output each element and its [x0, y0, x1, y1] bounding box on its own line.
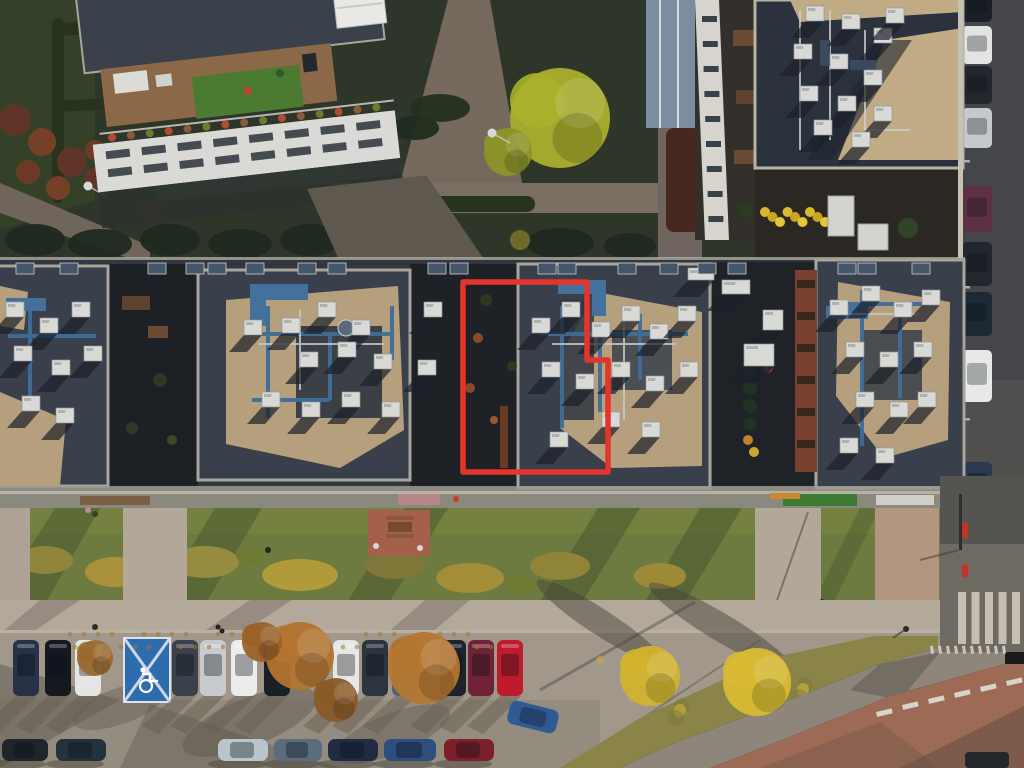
patio-deck	[80, 496, 150, 505]
hvac-vent	[376, 356, 383, 359]
pedestrian	[265, 547, 271, 553]
leaf	[184, 632, 189, 637]
sidewalk	[0, 600, 1005, 634]
hvac-vent	[284, 320, 291, 323]
hvac-vent	[264, 394, 271, 397]
hvac-vent	[578, 376, 585, 379]
window	[797, 376, 815, 384]
leaf	[230, 632, 235, 637]
hvac-vent	[832, 302, 839, 305]
tree	[388, 632, 460, 704]
aerial-photo-canvas	[0, 0, 1024, 768]
glass-facade	[646, 0, 696, 128]
leaf	[341, 645, 346, 650]
hvac-vent	[552, 434, 559, 437]
window	[703, 41, 718, 47]
hvac-vent	[878, 450, 885, 453]
zebra-stripe	[999, 592, 1007, 644]
leaf-cover	[596, 656, 604, 664]
hvac-vent	[680, 308, 687, 311]
zebra-stripe	[972, 592, 980, 644]
window	[706, 141, 721, 147]
hvac-vent	[384, 404, 391, 407]
round-vent	[338, 320, 354, 336]
leaf	[466, 632, 471, 637]
hvac-vent	[16, 348, 23, 351]
terrace-shrub	[898, 218, 918, 238]
skylight	[148, 263, 166, 274]
skylight	[858, 263, 876, 274]
townhouse-row	[0, 257, 965, 492]
skylight	[698, 263, 716, 274]
patio-mat	[876, 495, 934, 505]
tree	[723, 648, 791, 716]
leaf	[392, 632, 397, 637]
leaf	[475, 645, 480, 650]
hvac-vent	[864, 288, 871, 291]
skylight	[728, 263, 746, 274]
hvac-vent	[420, 362, 427, 365]
patio-blanket	[398, 494, 440, 505]
skylight	[60, 263, 78, 274]
window	[704, 66, 719, 72]
picnic-table	[388, 522, 412, 532]
hvac-vent	[816, 122, 823, 125]
hvac-vent	[916, 344, 923, 347]
hvac-vent	[858, 394, 865, 397]
leaf	[119, 645, 124, 650]
tree	[620, 646, 680, 706]
skylight	[912, 263, 930, 274]
leaf	[378, 632, 383, 637]
terrace-hvac	[858, 224, 888, 250]
zebra-stripe	[1012, 592, 1020, 644]
zebra-stripe	[958, 592, 966, 644]
leaf	[179, 645, 184, 650]
leaf	[193, 645, 198, 650]
hvac-vent	[866, 72, 873, 75]
window	[797, 344, 815, 352]
hvac-vent	[808, 8, 815, 11]
hvac-vent	[896, 304, 903, 307]
leaf	[221, 645, 226, 650]
hvac-vent	[840, 98, 847, 101]
hvac-vent	[320, 304, 327, 307]
leaf-cover	[668, 710, 684, 726]
skylight	[428, 263, 446, 274]
hvac-vent	[876, 108, 883, 111]
parked-car	[965, 752, 1009, 768]
leaf	[110, 632, 115, 637]
window	[704, 91, 719, 97]
window	[707, 166, 722, 172]
hvac-vent	[86, 348, 93, 351]
hvac-vent	[844, 16, 851, 19]
leaf	[489, 645, 494, 650]
skylight	[186, 263, 204, 274]
terrace-bench	[500, 406, 508, 468]
lawn-strip	[0, 507, 1005, 634]
terrace-grill	[302, 53, 318, 72]
tree	[242, 622, 282, 662]
leaf	[142, 632, 147, 637]
red-bollard	[962, 564, 968, 578]
hvac-vent	[842, 440, 849, 443]
skylight	[246, 263, 264, 274]
leaf	[452, 632, 457, 637]
hvac-vent	[644, 424, 651, 427]
hvac-vent	[354, 322, 361, 325]
hvac-vent	[796, 46, 803, 49]
leaf	[147, 645, 152, 650]
skylight	[328, 263, 346, 274]
hvac-vent	[832, 56, 839, 59]
hvac-vent	[594, 324, 601, 327]
red-bollard	[962, 522, 968, 539]
hvac-vent	[652, 326, 659, 329]
leaf	[170, 632, 175, 637]
hvac-vent	[648, 378, 655, 381]
window	[702, 16, 717, 22]
cyclist	[216, 625, 221, 630]
hvac-vent	[426, 304, 433, 307]
leaf	[96, 632, 101, 637]
leaf	[355, 645, 360, 650]
hvac-vent	[304, 404, 311, 407]
hvac-vent	[624, 308, 631, 311]
hvac-vent	[54, 362, 61, 365]
window	[708, 216, 723, 222]
skylight	[660, 263, 678, 274]
window	[797, 280, 815, 288]
hvac-vent	[614, 364, 621, 367]
tree	[314, 678, 358, 722]
hvac-vent	[920, 394, 927, 397]
hvac-vent	[682, 364, 689, 367]
window	[797, 440, 815, 448]
window	[708, 191, 723, 197]
hvac-vent	[765, 312, 773, 315]
hvac-vent	[924, 292, 931, 295]
window	[705, 116, 720, 122]
hvac-vent	[42, 320, 49, 323]
leaf	[68, 632, 73, 637]
hvac-vent	[848, 344, 855, 347]
hvac-vent	[544, 364, 551, 367]
hvac-vent	[888, 10, 895, 13]
shrub	[510, 230, 530, 250]
skylight	[208, 263, 226, 274]
hvac-vent	[854, 134, 861, 137]
hvac-vent	[564, 304, 571, 307]
leaf	[156, 632, 161, 637]
terrace-furniture	[113, 70, 149, 94]
leaf	[73, 645, 78, 650]
pedestrian	[92, 624, 98, 630]
hvac-vent	[340, 344, 347, 347]
skylight	[838, 263, 856, 274]
terrace-hvac	[828, 196, 854, 236]
leaf	[364, 632, 369, 637]
flower	[775, 217, 785, 227]
leaf	[133, 645, 138, 650]
hvac-vent	[534, 320, 541, 323]
hvac-vent	[58, 410, 65, 413]
aerial-photo	[0, 0, 1024, 768]
hvac-vent	[746, 346, 758, 349]
skylight	[450, 263, 468, 274]
facade-strip	[0, 491, 965, 508]
parked-car	[0, 739, 48, 768]
skylight	[298, 263, 316, 274]
leaf	[207, 645, 212, 650]
hvac-vent	[24, 398, 31, 401]
terrace-furniture	[155, 73, 172, 87]
skylight	[618, 263, 636, 274]
leaf	[216, 632, 221, 637]
hvac-vent	[246, 322, 253, 325]
hvac-vent	[74, 304, 81, 307]
hvac-vent	[724, 282, 735, 285]
roof-terrace	[108, 264, 198, 488]
hvac-vent	[802, 88, 809, 91]
skylight	[538, 263, 556, 274]
flower	[798, 217, 808, 227]
window	[797, 312, 815, 320]
street-pole	[959, 494, 962, 550]
tree	[77, 640, 113, 676]
hvac-vent	[892, 404, 899, 407]
hvac-vent	[8, 304, 15, 307]
hvac-vent	[344, 394, 351, 397]
skylight	[16, 263, 34, 274]
zebra-stripe	[985, 592, 993, 644]
hvac-vent	[302, 354, 309, 357]
hvac-vent	[882, 354, 889, 357]
leaf	[82, 632, 87, 637]
window	[797, 408, 815, 416]
skylight	[558, 263, 576, 274]
